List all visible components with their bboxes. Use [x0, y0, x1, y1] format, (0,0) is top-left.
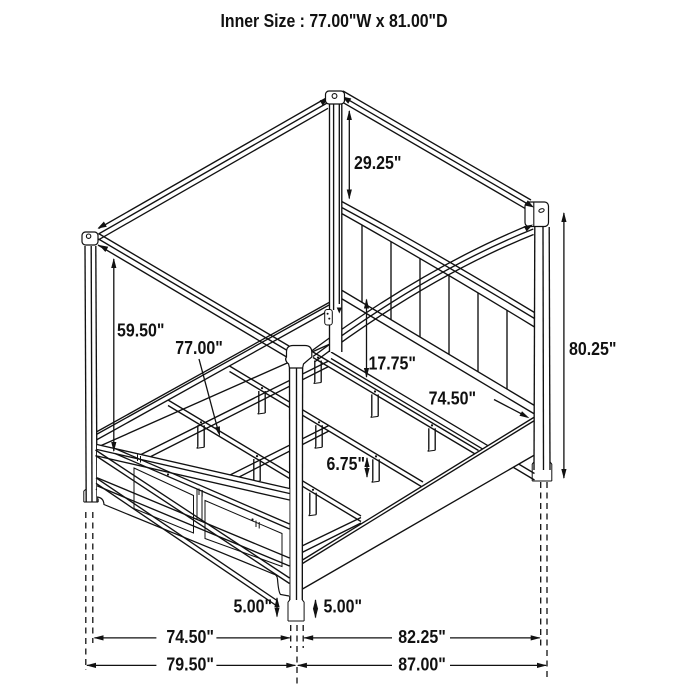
svg-text:79.50": 79.50": [166, 655, 214, 675]
svg-text:74.50": 74.50": [429, 389, 477, 409]
svg-text:5.00": 5.00": [234, 597, 273, 617]
svg-text:29.25": 29.25": [354, 153, 402, 173]
svg-text:87.00": 87.00": [398, 655, 446, 675]
svg-text:5.00": 5.00": [324, 597, 363, 617]
svg-text:80.25": 80.25": [569, 339, 617, 359]
svg-text:74.50": 74.50": [166, 627, 214, 647]
svg-text:77.00": 77.00": [175, 338, 223, 358]
svg-text:6.75": 6.75": [327, 454, 366, 474]
svg-text:17.75": 17.75": [369, 354, 417, 374]
svg-text:82.25": 82.25": [398, 627, 446, 647]
svg-text:Inner Size : 77.00"W x 81.00"D: Inner Size : 77.00"W x 81.00"D: [221, 10, 448, 31]
svg-text:59.50": 59.50": [117, 321, 165, 341]
